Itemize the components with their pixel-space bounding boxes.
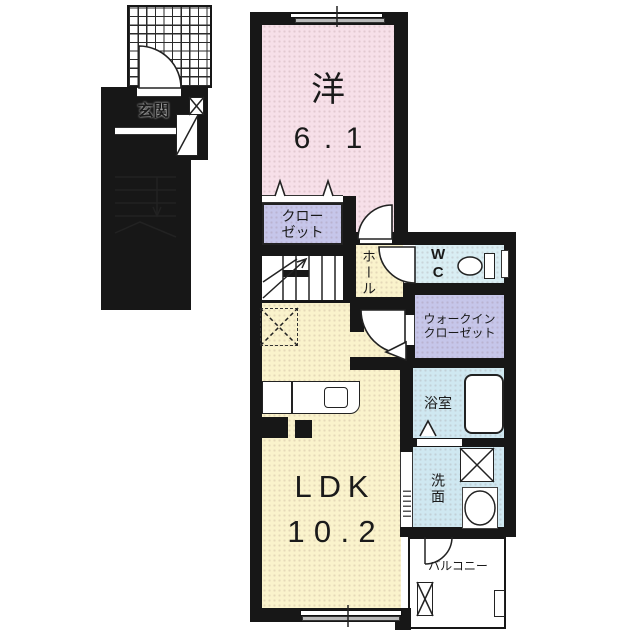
porch-door-threshold: [137, 87, 181, 97]
wall-wic-west-lower: [403, 345, 415, 358]
wall-wc-south: [403, 283, 516, 295]
internal-stairs-floor: [262, 256, 343, 300]
ldk-floor: [262, 303, 401, 608]
floor-plan: 玄関 洋 6.1 クロー ゼット ホール WC ウォークイン クローゼット 浴室…: [0, 0, 640, 640]
wic-door-opening: [403, 315, 415, 345]
toilet-tank: [484, 253, 495, 279]
walk-in-closet-line1: ウォークイン: [423, 313, 495, 327]
washroom-label: 洗面: [427, 463, 449, 515]
closet-folding-door-band: [262, 195, 343, 203]
wash-basin-pad: [462, 487, 498, 529]
balcony-drain-box: [494, 590, 505, 617]
western-room-label: 洋: [262, 72, 394, 110]
wall-nook-south: [350, 357, 407, 370]
bathtub-icon: [464, 374, 504, 434]
refrigerator-space-box: [260, 308, 298, 346]
wc-window: [501, 250, 509, 278]
entrance-step: [115, 127, 176, 135]
entrance-porch-tiles: [127, 5, 212, 88]
wall-wash-south: [400, 527, 516, 537]
balcony-label: バルコニー: [412, 559, 504, 575]
internal-stairs-bar: [283, 270, 309, 277]
bathroom-label: 浴室: [413, 395, 463, 412]
washroom-sliding-door-hatch: [403, 487, 411, 517]
closet-label-line1: クロー: [282, 208, 324, 224]
entrance-label: 玄関: [115, 102, 192, 122]
wall-kitchen-stub: [250, 417, 288, 438]
wall-stairs-south-line: [262, 300, 343, 303]
ldk-label: LDK: [262, 470, 401, 504]
wall-kitchen-stub-small: [295, 420, 312, 438]
wall-western-east: [394, 12, 408, 245]
wall-nook-west: [350, 303, 364, 332]
kitchen-sink-icon: [324, 387, 348, 408]
wc-label: WC: [428, 246, 448, 282]
kitchen-counter-divider: [291, 381, 293, 414]
balcony-washer-box: [417, 582, 433, 616]
wall-wic-west-upper: [403, 295, 415, 315]
wc-door-opening: [403, 247, 415, 283]
walk-in-closet-line2: クローゼット: [423, 327, 495, 341]
walk-in-closet-label: ウォークイン クローゼット: [415, 311, 504, 343]
washing-machine-box: [460, 448, 494, 482]
ldk-size: 10.2: [262, 515, 401, 549]
wall-wic-south: [400, 358, 516, 368]
north-window-pane: [295, 18, 385, 23]
western-door-threshold: [360, 233, 392, 244]
bath-door-threshold: [417, 439, 462, 446]
hall-label: ホール: [358, 246, 380, 300]
closet-label: クロー ゼット: [262, 205, 343, 243]
wall-stairs-north: [250, 245, 356, 256]
western-room-size: 6.1: [262, 122, 394, 156]
closet-label-line2: ゼット: [282, 224, 324, 240]
south-window-pane: [302, 616, 400, 621]
